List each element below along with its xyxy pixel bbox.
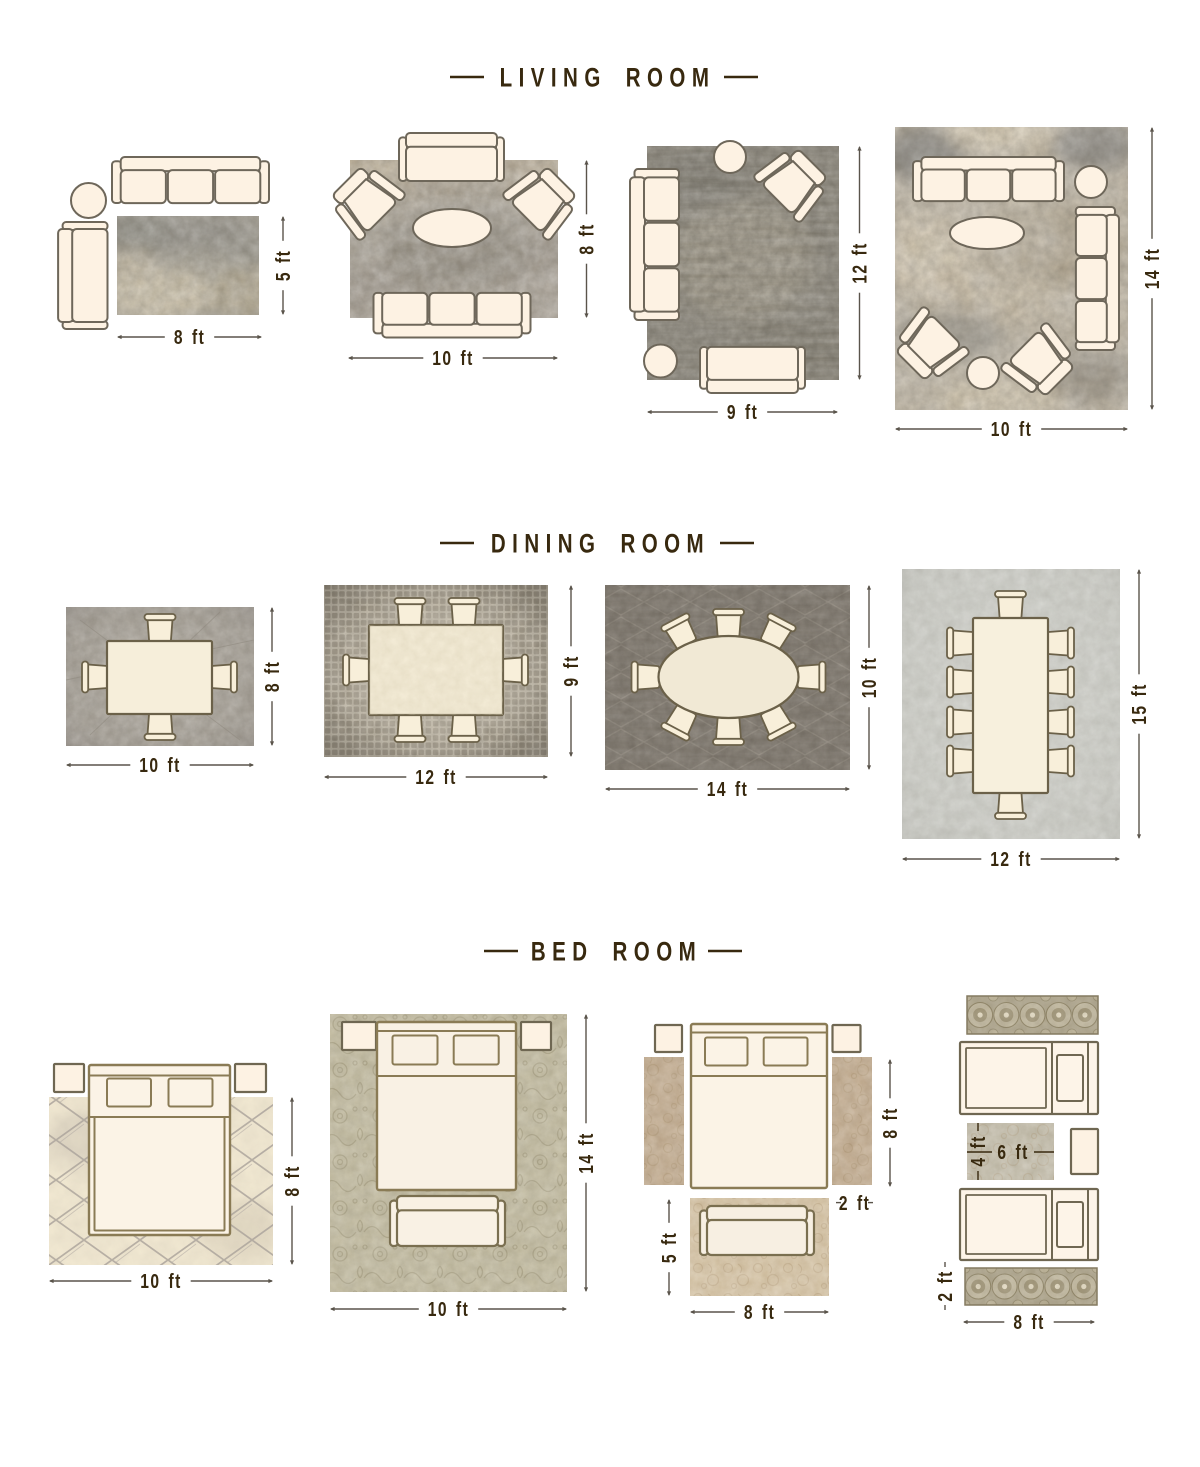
svg-text:4 ft: 4 ft [967, 1135, 989, 1166]
svg-text:LIVING ROOM: LIVING ROOM [500, 63, 716, 93]
svg-text:8 ft: 8 ft [281, 1165, 303, 1196]
svg-text:9 ft: 9 ft [727, 401, 758, 423]
svg-text:8 ft: 8 ft [261, 661, 283, 692]
svg-text:DINING ROOM: DINING ROOM [491, 529, 710, 559]
svg-text:10 ft: 10 ft [991, 418, 1032, 440]
svg-text:10 ft: 10 ft [432, 347, 473, 369]
svg-text:8 ft: 8 ft [879, 1107, 901, 1138]
svg-text:10 ft: 10 ft [140, 1270, 181, 1292]
svg-text:14 ft: 14 ft [575, 1132, 597, 1173]
svg-text:10 ft: 10 ft [858, 657, 880, 698]
svg-text:8 ft: 8 ft [174, 326, 205, 348]
svg-text:BED ROOM: BED ROOM [531, 937, 702, 967]
svg-text:8 ft: 8 ft [1013, 1311, 1044, 1333]
svg-text:9 ft: 9 ft [560, 655, 582, 686]
svg-text:12 ft: 12 ft [849, 242, 871, 283]
svg-text:10 ft: 10 ft [139, 754, 180, 776]
svg-text:6 ft: 6 ft [997, 1141, 1028, 1163]
svg-text:15 ft: 15 ft [1128, 683, 1150, 724]
svg-text:5 ft: 5 ft [272, 250, 294, 281]
svg-text:2 ft: 2 ft [934, 1270, 956, 1301]
svg-text:8 ft: 8 ft [576, 223, 598, 254]
svg-text:12 ft: 12 ft [990, 848, 1031, 870]
svg-text:14 ft: 14 ft [707, 778, 748, 800]
svg-text:12 ft: 12 ft [415, 766, 456, 788]
svg-text:2 ft: 2 ft [839, 1192, 870, 1214]
svg-text:5 ft: 5 ft [658, 1232, 680, 1263]
svg-text:14 ft: 14 ft [1141, 248, 1163, 289]
svg-text:8 ft: 8 ft [744, 1301, 775, 1323]
svg-text:10 ft: 10 ft [428, 1298, 469, 1320]
